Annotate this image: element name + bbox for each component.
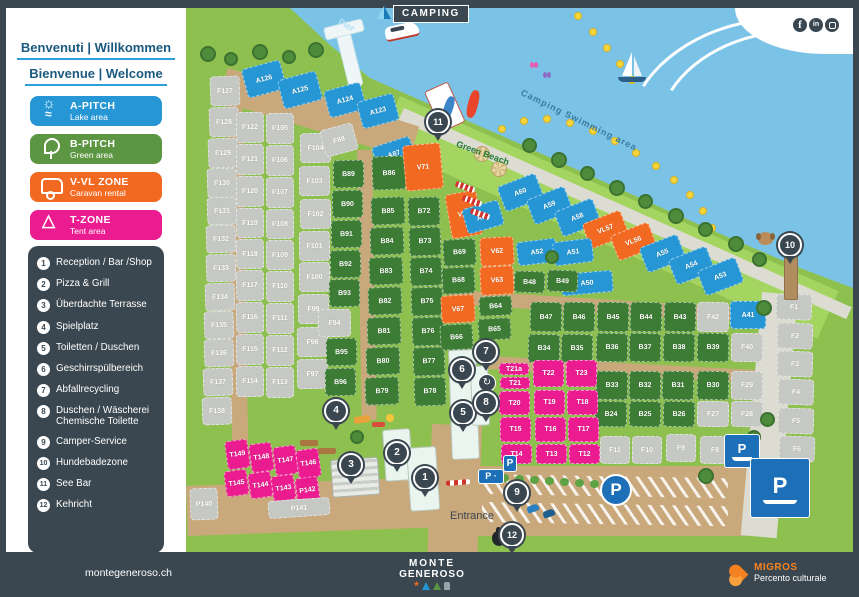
pitch-T21a: T21a [499,363,529,375]
parking-sign: P [600,474,632,506]
pitch-T17: T17 [568,417,599,442]
recycling-icon: ↻ [478,374,496,392]
pitch-B73: B73 [409,226,442,256]
pitch-F9: F9 [666,434,696,463]
buoy-icon [603,44,611,52]
dog-icon [758,232,773,245]
pitch-B49: B49 [547,269,579,292]
zone-code: B-PITCH [70,138,115,150]
pitch-T149: T149 [224,439,251,471]
zone-badge-t-zone: T-ZONETent area [30,210,162,240]
pitch-T15: T15 [500,417,531,442]
pitch-B72: B72 [408,196,441,226]
tree-icon [728,236,744,252]
pitch-F3: F3 [777,350,814,377]
tree-icon [200,46,216,62]
pitch-F128: F128 [208,106,239,137]
bush-icon [560,478,569,486]
legend: 1Reception / Bar /Shop2Pizza & Grill3Übe… [28,246,164,553]
zone-badge-v-vl-zone: V-VL ZONECaravan rental [30,172,162,202]
map-marker-8: 8 [474,391,498,415]
buoy-icon [498,125,506,133]
legend-item-6: 6Geschirrspülbereich [37,363,155,376]
pitch-B65: B65 [477,317,511,341]
zone-label: Tent area [70,226,111,236]
butterfly-icon [530,62,538,68]
pitch-F112: F112 [266,335,295,366]
legend-item-2: 2Pizza & Grill [37,278,155,291]
legend-number: 8 [37,405,50,418]
buoy-icon [520,117,528,125]
swimming-area-label: Camping Swimming area [519,87,638,152]
legend-label: Kehricht [56,499,92,510]
pitch-B95: B95 [326,338,357,367]
zone-badge-a-pitch: A-PITCHLake area [30,96,162,126]
disabled-parking-sign: P · [478,469,504,484]
legend-label: Pizza & Grill [56,278,109,289]
pitch-T18: T18 [567,390,598,415]
pitch-B96: B96 [325,368,356,397]
legend-item-4: 4Spielplatz [37,321,155,334]
monte-generoso-logo: MONTE GENEROSO * [398,558,466,590]
pitch-B32: B32 [629,371,662,401]
pitch-B45: B45 [597,302,630,333]
picnic-table-icon [318,448,336,454]
pitch-F133: F133 [206,253,237,282]
pitch-B68: B68 [441,266,475,295]
pitch-T22: T22 [533,360,564,387]
instagram-icon[interactable] [825,18,839,32]
playground-equipment-icon [372,422,385,427]
legend-item-8: 8Duschen / WäschereiChemische Toilette [37,405,155,427]
map-marker-7: 7 [474,340,498,364]
logo-line-2: GENEROSO [398,569,466,580]
pitch-T145: T145 [223,469,249,498]
pitch-B39: B39 [697,333,730,363]
pitch-T144: T144 [247,471,273,500]
pitch-B37: B37 [629,333,662,363]
pitch-T12: T12 [569,444,600,464]
legend-label: Toiletten / Duschen [56,342,139,353]
bush-icon [530,476,539,484]
pitch-T143: T143 [270,474,296,503]
pitch-F117: F117 [236,270,265,301]
legend-number: 3 [37,299,50,312]
parking-sign-small: P [503,455,517,472]
zone-badge-b-pitch: B-PITCHGreen area [30,134,162,164]
zone-label: Green area [70,150,115,160]
linkedin-icon[interactable]: in [809,18,823,32]
pitch-F107: F107 [266,177,295,208]
pitch-B24: B24 [595,401,627,428]
legend-number: 12 [37,499,50,512]
pitch-B89: B89 [333,160,364,189]
pitch-B43: B43 [664,302,697,333]
tree-icon [545,250,559,264]
legend-item-11: 11See Bar [37,478,155,491]
tower-icon [444,582,450,590]
migros-sublabel: Percento culturale [754,573,827,583]
legend-label: Überdachte Terrasse [56,299,147,310]
buoy-icon [589,28,597,36]
pitch-V63: V63 [479,265,514,296]
pitch-F5: F5 [778,407,815,434]
buoy-icon [670,176,678,184]
pitch-F122: F122 [236,112,265,143]
legend-label: See Bar [56,478,91,489]
pitch-F102: F102 [300,199,332,230]
pitch-F11: F11 [600,436,630,465]
kayak-icon [465,89,481,119]
welcome-heading: Benvenuti | Willkommen Bienvenue | Welco… [6,38,186,90]
tree-icon [638,194,653,209]
pitch-B64: B64 [478,295,512,317]
map-marker-5: 5 [451,401,475,425]
welcome-line-2: Bienvenue | Welcome [25,64,166,86]
pitch-B84: B84 [370,226,405,255]
bush-icon [590,480,599,488]
pitch-F132: F132 [206,224,237,253]
legend-item-7: 7Abfallrecycling [37,384,155,397]
pitch-B26: B26 [663,401,695,428]
legend-number: 4 [37,321,50,334]
pitch-F127: F127 [209,75,240,106]
flower-icon: * [414,582,419,590]
pitch-F114: F114 [236,366,265,397]
legend-item-12: 12Kehricht [37,499,155,512]
map-marker-9: 9 [505,481,529,505]
pitch-B46: B46 [563,302,596,333]
pitch-F2: F2 [777,322,814,349]
buoy-icon [686,191,694,199]
pitch-T148: T148 [248,442,275,474]
zone-label: Caravan rental [70,188,129,198]
pitch-B91: B91 [331,220,362,249]
pitch-F136: F136 [204,338,235,367]
legend-number: 6 [37,363,50,376]
map-marker-6: 6 [450,358,474,382]
pitch-B33: B33 [596,371,629,401]
logo-line-1: MONTE [398,558,466,569]
pitch-F28: F28 [731,401,763,428]
legend-label: Geschirrspülbereich [56,363,143,374]
pitch-F130: F130 [206,167,237,198]
migros-label: MIGROS [754,562,827,573]
pitch-B85: B85 [371,196,406,225]
pitch-B36: B36 [596,333,629,363]
pitch-F135: F135 [204,310,235,339]
picnic-table-icon [300,440,318,446]
legend-number: 9 [37,436,50,449]
tree-icon [668,208,684,224]
legend-label: Camper-Service [56,436,127,447]
legend-label: Hundebadezone [56,457,128,468]
tree-icon [752,252,767,267]
welcome-line-1: Benvenuti | Willkommen [17,38,175,60]
tree-icon [282,50,296,64]
map-marker-12: 12 [500,523,524,547]
migros-logo: MIGROS Percento culturale [733,562,827,583]
tree-icon [609,180,625,196]
pitch-F119: F119 [236,208,265,238]
logo-shapes: * [398,582,466,590]
map-marker-11: 11 [426,110,450,134]
pitch-B75: B75 [411,286,444,316]
pitch-F116: F116 [236,302,265,333]
pitch-F10: F10 [632,436,662,465]
pitch-P140: P140 [189,488,218,521]
pitch-F29: F29 [731,371,764,401]
legend-item-9: 9Camper-Service [37,436,155,449]
pitch-F111: F111 [266,303,295,334]
pitch-B69: B69 [442,238,476,267]
boat-parking-sign-large: P [750,458,810,518]
bush-icon [575,479,584,487]
pitch-F109: F109 [266,240,295,270]
buoy-icon [699,207,707,215]
zone-label: Lake area [70,112,115,122]
pitch-F42: F42 [697,302,730,333]
tree-icon [522,138,537,153]
pitch-F129: F129 [207,137,238,168]
tree-icon [350,430,364,444]
pitch-F121: F121 [236,144,265,175]
tree-icon [698,468,714,484]
tent-icon [38,212,66,238]
pitch-B47: B47 [530,302,563,333]
pitch-B74: B74 [410,256,443,286]
tree-icon [308,42,324,58]
playground-equipment-icon [386,414,394,422]
pitch-T21: T21 [500,377,530,389]
pitch-B81: B81 [367,316,402,345]
pitch-B77: B77 [413,346,446,376]
legend-number: 11 [37,478,50,491]
legend-label: Duschen / WäschereiChemische Toilette [56,405,149,427]
camping-logo: CAMPING [393,5,469,23]
pitch-F4: F4 [778,378,815,405]
pitch-T16: T16 [535,417,566,442]
pitch-F100: F100 [299,262,331,293]
pitch-B34: B34 [528,334,561,364]
info-panel: Benvenuti | Willkommen Bienvenue | Welco… [6,8,186,552]
pitch-T13: T13 [536,444,567,464]
pitch-F106: F106 [266,145,295,176]
pitch-T19: T19 [534,390,565,415]
website-link[interactable]: montegeneroso.ch [85,567,172,579]
pitch-F97: F97 [297,359,329,390]
tree-icon [224,52,238,66]
migros-heart-icon [731,566,749,584]
legend-item-3: 3Überdachte Terrasse [37,299,155,312]
legend-label: Reception / Bar /Shop [56,257,152,268]
pitch-V62: V62 [479,236,514,267]
buoy-icon [574,12,582,20]
pitch-B80: B80 [366,346,401,375]
pitch-F134: F134 [205,282,236,311]
pitch-F137: F137 [203,367,234,396]
pitch-F94: F94 [318,309,351,338]
tree-icon [756,300,772,316]
footer-bar: montegeneroso.ch MONTE GENEROSO * MIGROS… [0,552,859,597]
bush-icon [545,477,554,485]
blue-triangle-icon [422,582,430,590]
pitch-T23: T23 [566,360,597,387]
pitch-B83: B83 [369,256,404,285]
pitch-B79: B79 [365,376,400,405]
legend-number: 2 [37,278,50,291]
pitch-B82: B82 [368,286,403,315]
legend-item-10: 10Hundebadezone [37,457,155,470]
pitch-B38: B38 [663,333,696,363]
pitch-B35: B35 [561,334,594,364]
pitch-F27: F27 [697,401,729,428]
legend-item-5: 5Toiletten / Duschen [37,342,155,355]
map-marker-10: 10 [778,233,802,257]
legend-number: 5 [37,342,50,355]
zone-code: A-PITCH [70,100,115,112]
tree-icon [760,412,775,427]
pitch-F118: F118 [236,239,265,269]
facebook-icon[interactable]: f [793,18,807,32]
pitch-B48: B48 [514,270,546,293]
pitch-T147: T147 [272,445,299,477]
sun-lake-icon [38,98,66,124]
pitch-F115: F115 [236,334,265,365]
legend-label: Spielplatz [56,321,98,332]
entrance-label: Entrance [450,510,494,522]
motorboat-icon [384,21,420,43]
pitch-F131: F131 [207,196,238,225]
map-marker-3: 3 [339,453,363,477]
map-marker-2: 2 [385,441,409,465]
zone-badges: A-PITCHLake areaB-PITCHGreen areaV-VL ZO… [30,96,162,248]
caravan-icon [38,174,66,200]
legend-number: 10 [37,457,50,470]
pitch-V67: V67 [440,294,475,324]
pitch-F113: F113 [266,367,295,398]
legend-number: 1 [37,257,50,270]
pitch-B31: B31 [662,371,695,401]
buoy-icon [652,162,660,170]
pitch-B25: B25 [629,401,661,428]
legend-number: 7 [37,384,50,397]
pitch-B86: B86 [371,155,406,190]
pitch-V71: V71 [402,142,444,191]
pitch-A51: A51 [552,238,595,267]
pitch-F105: F105 [266,113,295,144]
pitch-F103: F103 [299,166,331,197]
pitch-F120: F120 [236,176,265,207]
pitch-B66: B66 [439,323,473,351]
tree-icon [698,222,713,237]
buoy-icon [543,115,551,123]
pitch-F101: F101 [299,231,331,262]
tree-icon [580,166,595,181]
pitch-T20: T20 [499,391,530,415]
tree-icon [551,152,567,168]
pitch-F138: F138 [202,396,233,425]
campground-map: P P P P · P ↻ Pier Green Beach Camping S… [186,8,853,552]
pitch-B78: B78 [414,376,447,406]
green-triangle-icon [433,582,441,590]
pitch-B93: B93 [329,279,360,308]
pitch-F110: F110 [266,271,295,302]
map-marker-4: 4 [324,399,348,423]
map-marker-1: 1 [413,466,437,490]
pitch-F108: F108 [266,209,295,239]
butterfly-icon [543,72,551,78]
pitch-F40: F40 [731,333,764,363]
tree-icon [38,136,66,162]
zone-code: T-ZONE [70,214,111,226]
tree-icon [252,44,268,60]
pitch-B90: B90 [332,190,363,219]
legend-label: Abfallrecycling [56,384,119,395]
pitch-B92: B92 [330,250,361,279]
pitch-B44: B44 [630,302,663,333]
zone-code: V-VL ZONE [70,176,129,188]
legend-item-1: 1Reception / Bar /Shop [37,257,155,270]
pitch-B30: B30 [697,371,730,401]
